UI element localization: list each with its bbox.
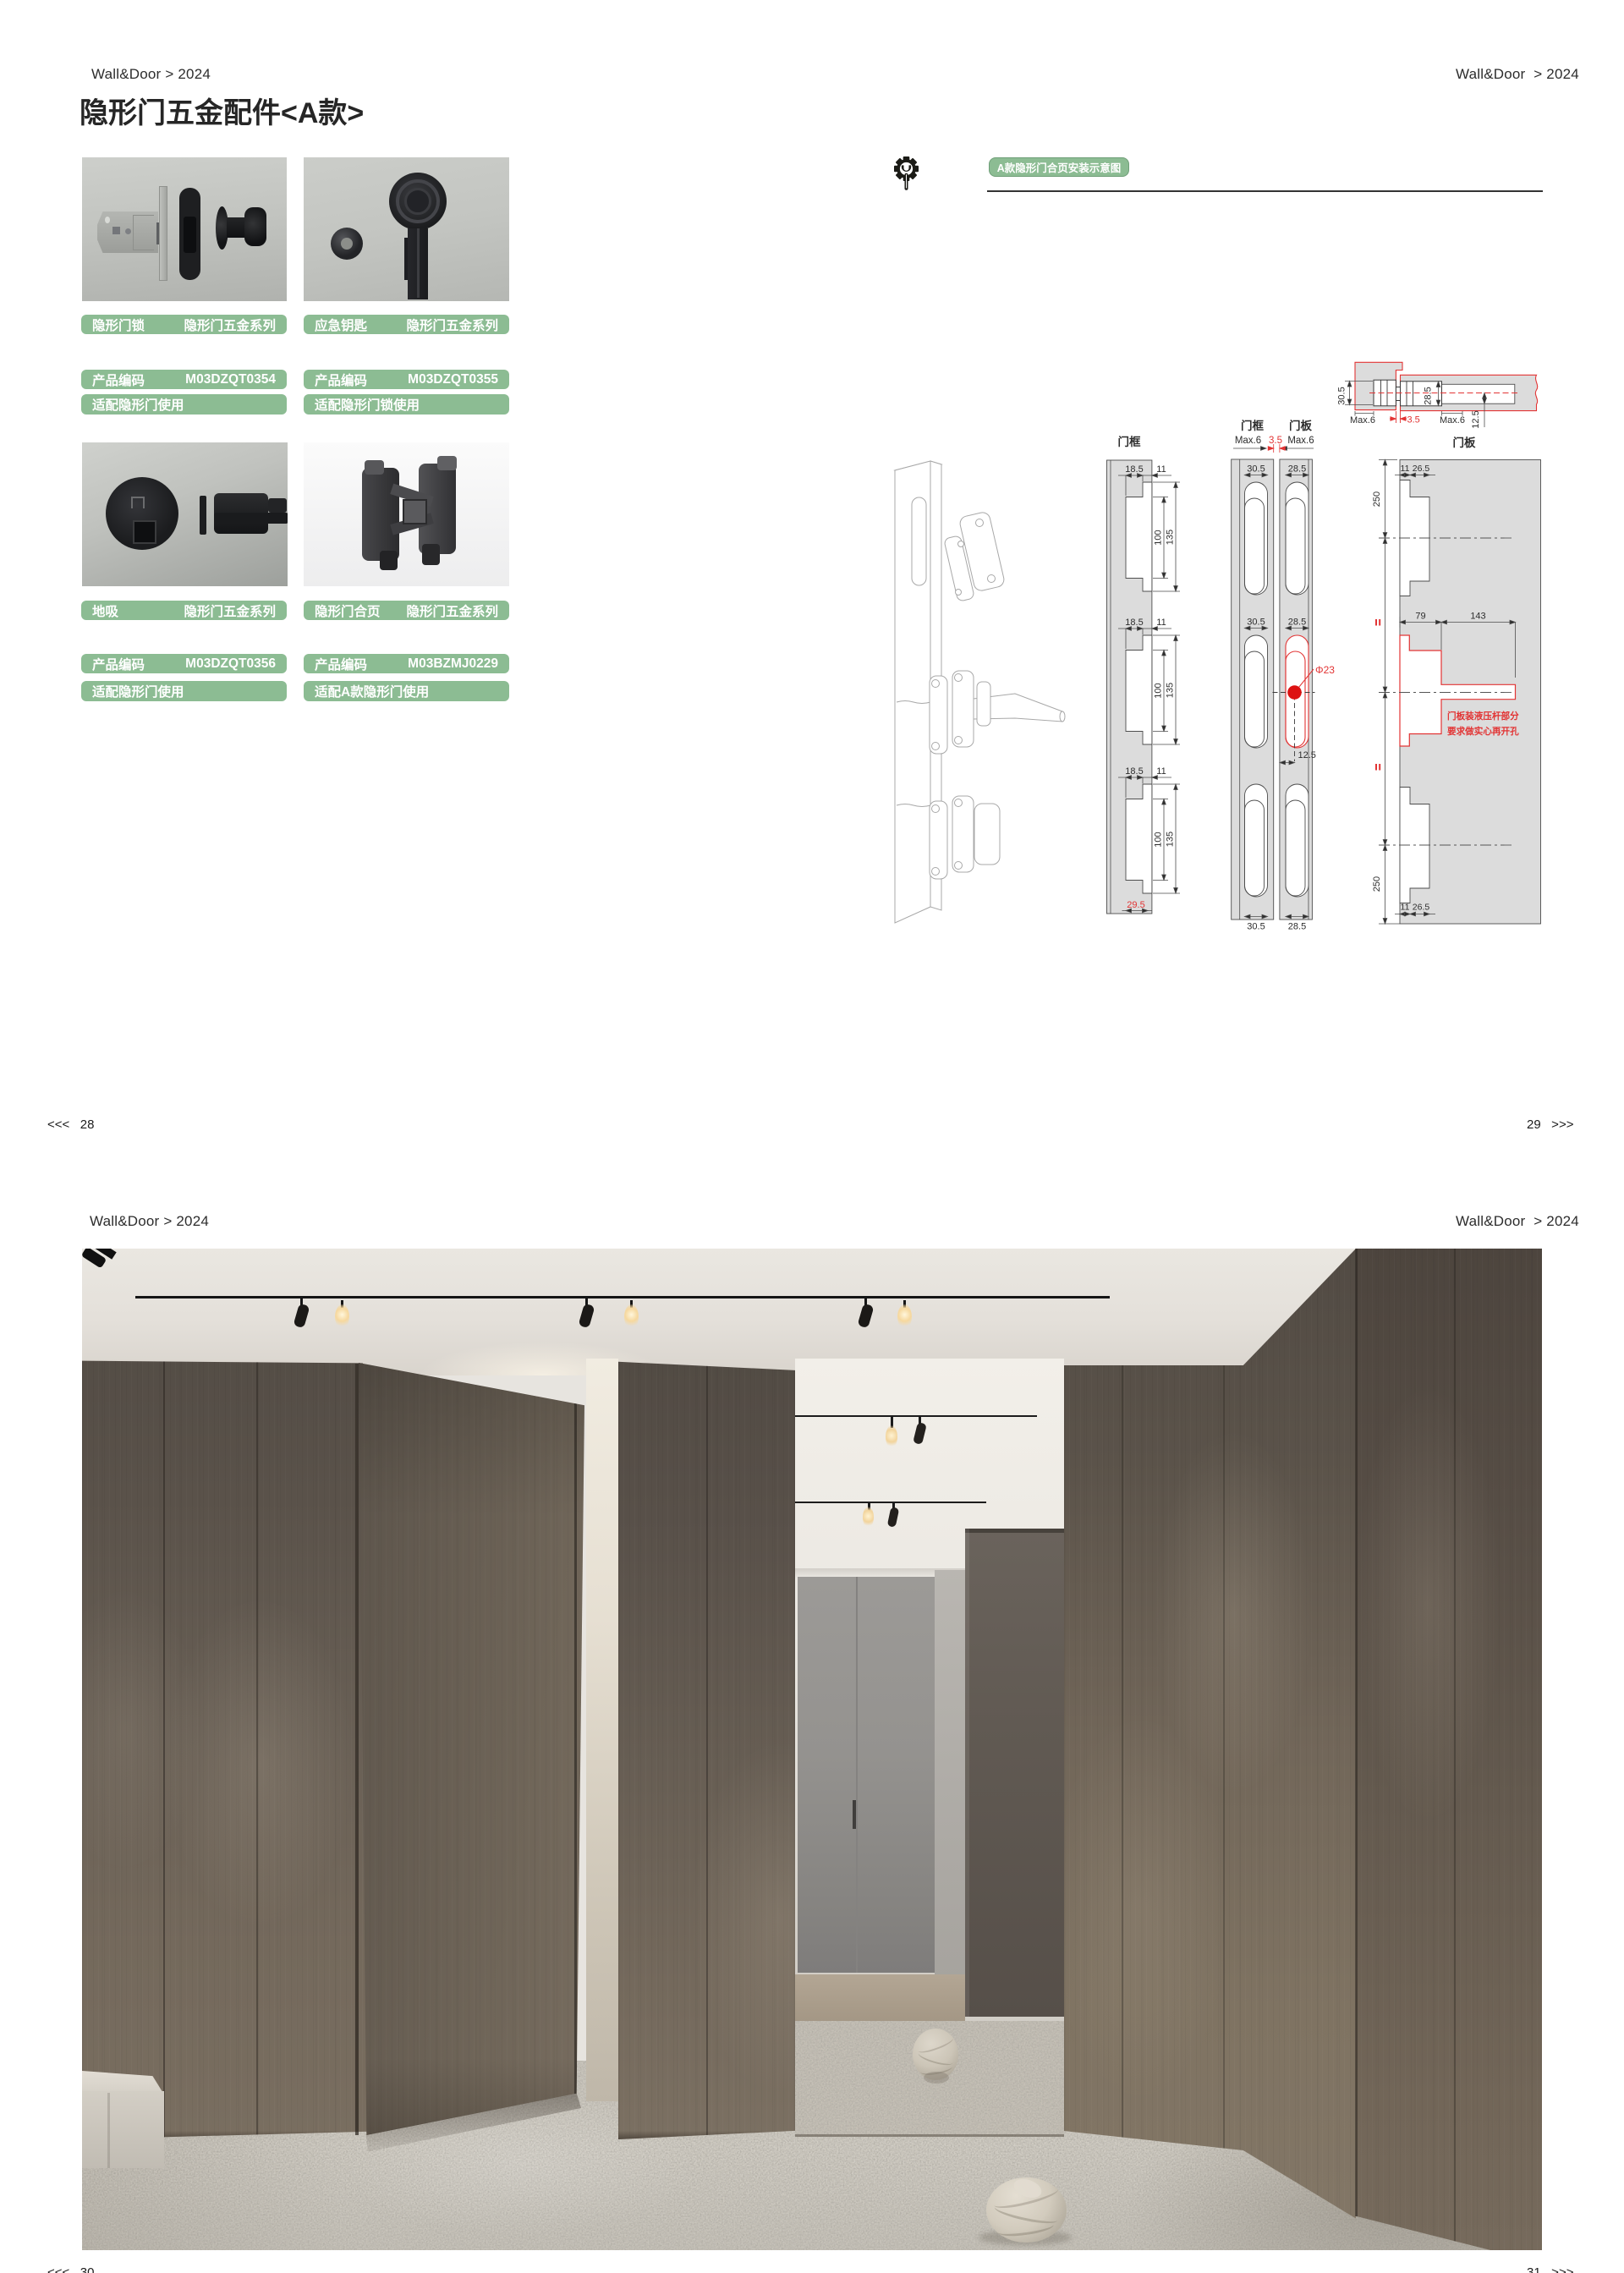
svg-text:门板装液压杆部分: 门板装液压杆部分: [1447, 711, 1519, 722]
svg-text:30.5: 30.5: [1247, 618, 1265, 628]
svg-text:3.5: 3.5: [1269, 436, 1282, 446]
svg-text:79: 79: [1415, 612, 1425, 622]
svg-text:143: 143: [1470, 612, 1485, 622]
svg-text:门框: 门框: [1118, 435, 1142, 448]
svg-text:Max.6: Max.6: [1350, 415, 1375, 426]
svg-text:门板: 门板: [1289, 419, 1313, 432]
svg-text:28.5: 28.5: [1424, 387, 1434, 404]
svg-text:26.5: 26.5: [1413, 464, 1430, 474]
svg-text:250: 250: [1372, 876, 1382, 892]
svg-text:门框: 门框: [1241, 419, 1265, 432]
svg-text:18.5: 18.5: [1125, 766, 1143, 777]
svg-text:11: 11: [1401, 903, 1410, 913]
svg-text:3.5: 3.5: [1407, 415, 1420, 426]
svg-text:要求做实心再开孔: 要求做实心再开孔: [1447, 726, 1519, 737]
svg-text:100: 100: [1154, 832, 1164, 847]
svg-text:11: 11: [1156, 464, 1166, 475]
svg-text:门板: 门板: [1453, 436, 1477, 449]
svg-text:28.5: 28.5: [1288, 922, 1306, 932]
svg-text:135: 135: [1166, 683, 1176, 698]
svg-text:28.5: 28.5: [1288, 618, 1306, 628]
svg-text:30.5: 30.5: [1247, 922, 1265, 932]
svg-text:28.5: 28.5: [1288, 464, 1306, 475]
svg-text:Max.6: Max.6: [1235, 436, 1261, 446]
svg-text:30.5: 30.5: [1247, 464, 1265, 475]
svg-text:11: 11: [1156, 618, 1166, 628]
svg-text:11: 11: [1401, 464, 1410, 474]
svg-text:Max.6: Max.6: [1287, 436, 1314, 446]
svg-text:250: 250: [1372, 491, 1382, 507]
svg-text:26.5: 26.5: [1413, 903, 1430, 913]
svg-text:100: 100: [1154, 530, 1164, 545]
svg-text:135: 135: [1166, 832, 1176, 847]
svg-text:100: 100: [1154, 683, 1164, 698]
svg-text:Max.6: Max.6: [1440, 415, 1465, 426]
svg-text:11: 11: [1156, 766, 1166, 777]
svg-text:18.5: 18.5: [1125, 464, 1143, 475]
svg-text:Φ23: Φ23: [1315, 664, 1335, 676]
svg-text:12.5: 12.5: [1298, 750, 1316, 760]
svg-text:18.5: 18.5: [1125, 618, 1143, 628]
svg-text:30.5: 30.5: [1337, 387, 1347, 404]
svg-text:12.5: 12.5: [1471, 410, 1481, 428]
svg-text:135: 135: [1166, 530, 1176, 545]
